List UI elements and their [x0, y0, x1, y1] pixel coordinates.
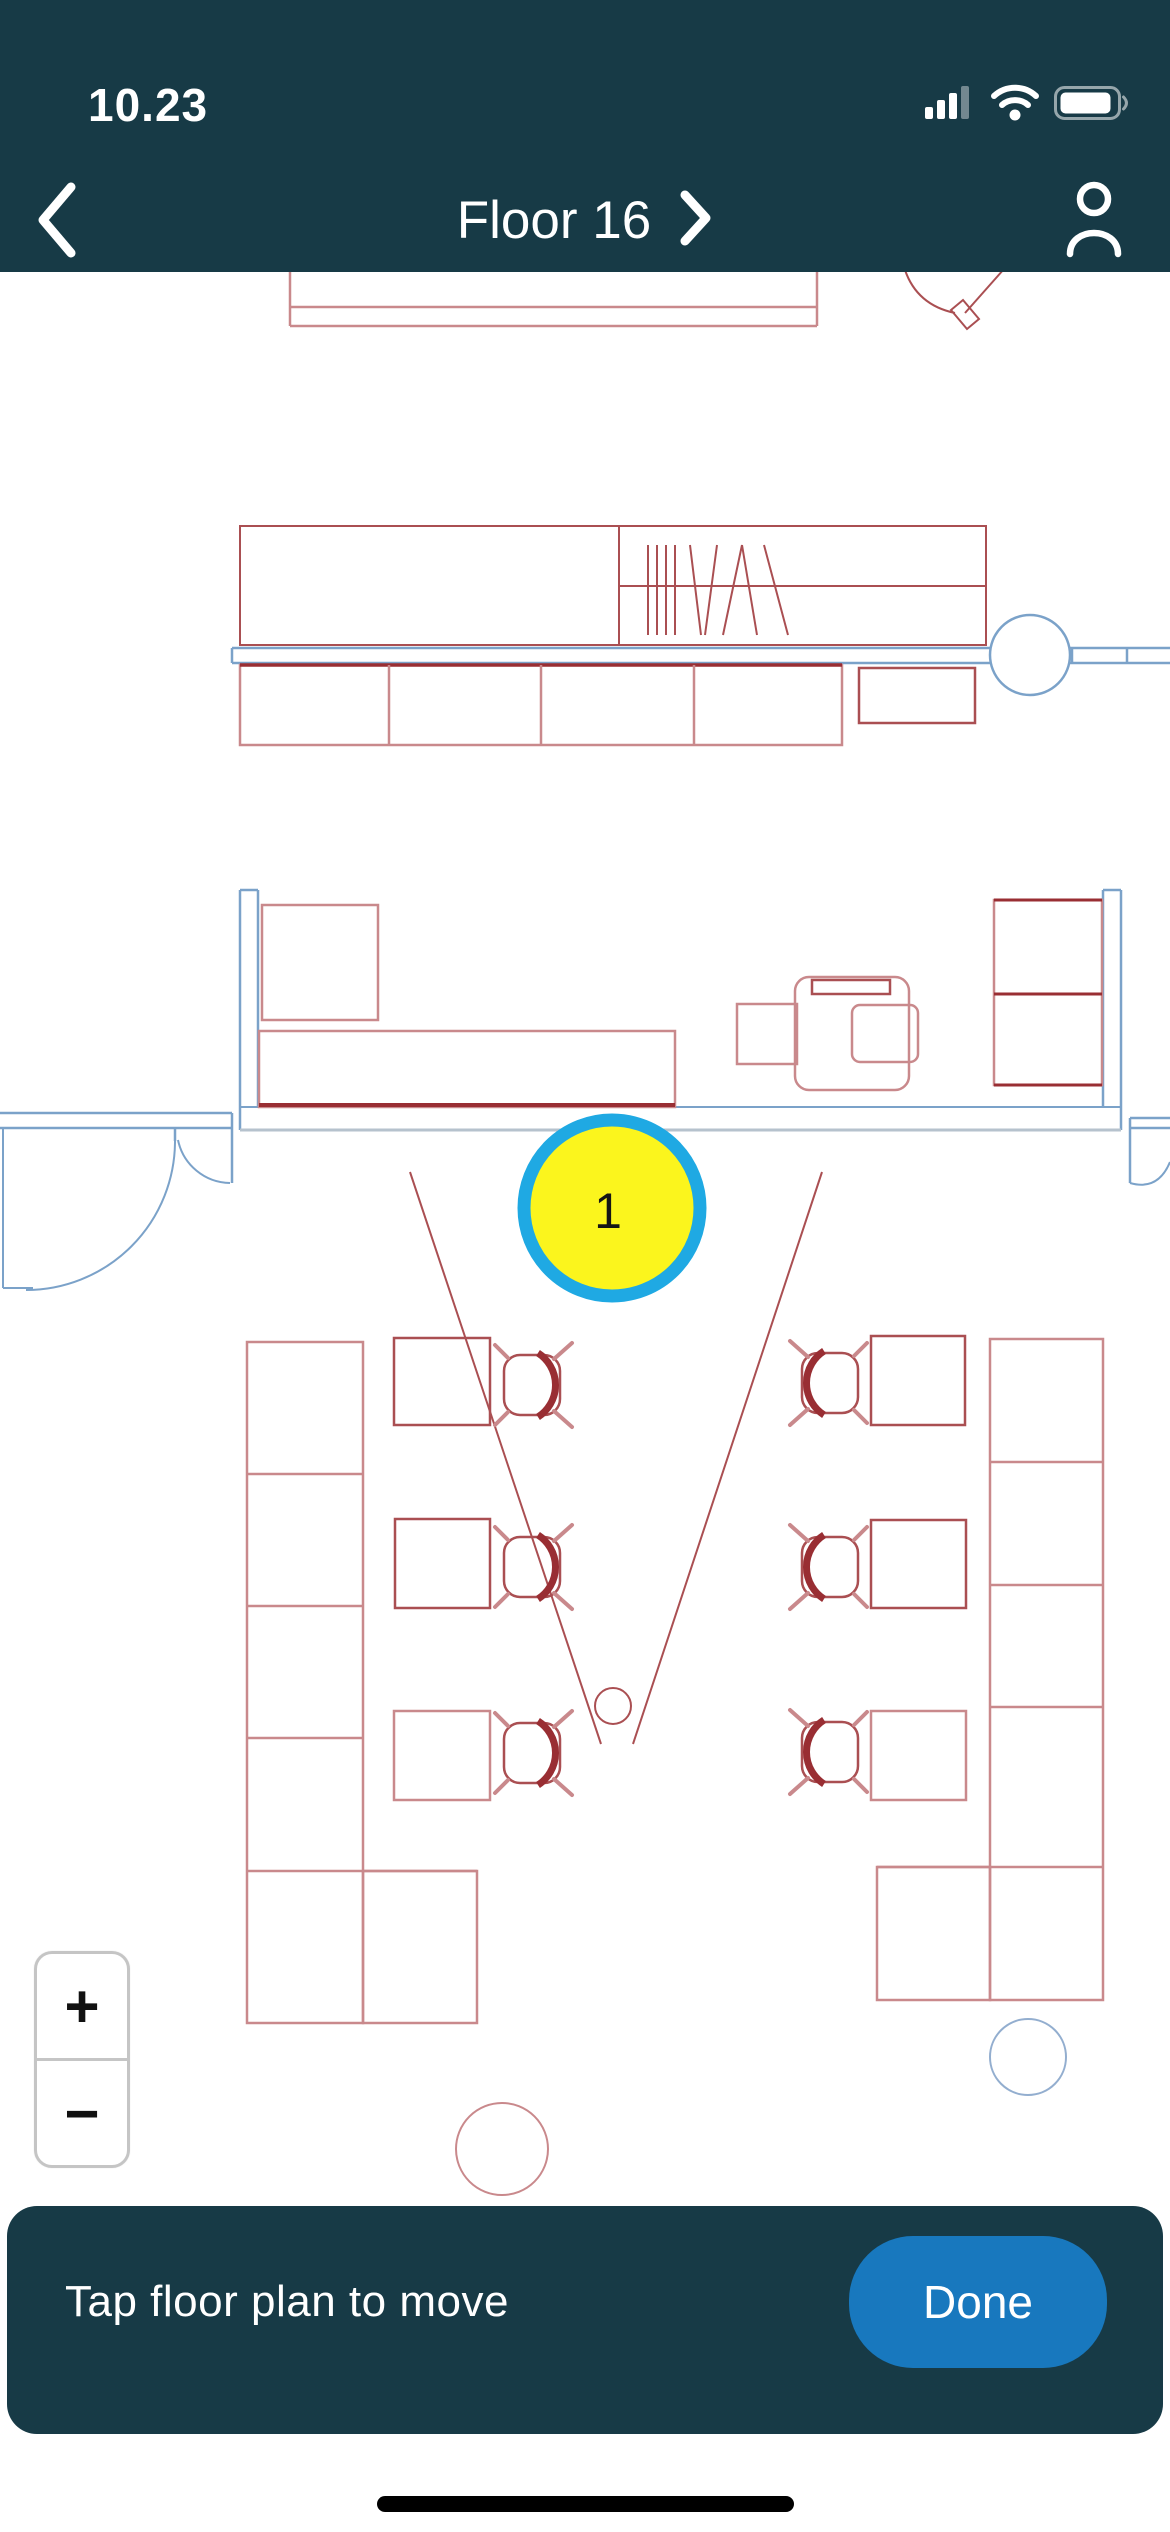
- chair-leg: [495, 1527, 508, 1540]
- chair-leg: [554, 1593, 572, 1609]
- chair-leg: [790, 1778, 808, 1794]
- entry-jamb-left: [3, 1128, 33, 1288]
- chair-back: [806, 1720, 824, 1784]
- chair-leg: [554, 1343, 572, 1359]
- room-cabinet: [262, 905, 378, 1020]
- status-icons: [924, 84, 1132, 127]
- chair-leg: [790, 1710, 808, 1726]
- room-wall-right: [1103, 890, 1121, 1130]
- home-indicator[interactable]: [377, 2496, 794, 2512]
- side-table: [859, 668, 975, 723]
- desk: [871, 1711, 966, 1800]
- desk: [395, 1519, 490, 1608]
- zoom-out-button[interactable]: −: [37, 2061, 127, 2165]
- chair-leg: [790, 1593, 808, 1609]
- chair: [495, 1711, 572, 1795]
- chair-back: [538, 1353, 556, 1417]
- cellular-signal-icon: [924, 85, 976, 126]
- chair: [790, 1710, 867, 1794]
- chair-leg: [790, 1525, 808, 1541]
- door-swing-right: [1130, 1162, 1170, 1185]
- floor-plan-svg[interactable]: 1: [0, 0, 1170, 2532]
- wifi-icon: [990, 84, 1040, 127]
- zoom-in-button[interactable]: +: [37, 1954, 127, 2061]
- chair-leg: [854, 1779, 867, 1792]
- chair-leg: [554, 1711, 572, 1727]
- floor-plan-canvas[interactable]: 1: [0, 0, 1170, 2532]
- room-credenza: [259, 1031, 675, 1107]
- door-arc-top: [905, 270, 955, 313]
- status-time: 10.23: [88, 78, 208, 132]
- chair-leg: [495, 1345, 508, 1358]
- bottom-action-bar: Tap floor plan to move Done: [7, 2206, 1163, 2434]
- room-wall-left: [240, 890, 258, 1130]
- counter-dividers: [389, 665, 694, 745]
- chair-leg: [854, 1594, 867, 1607]
- chair-leg: [790, 1409, 808, 1425]
- done-button[interactable]: Done: [849, 2236, 1107, 2368]
- battery-icon: [1054, 84, 1132, 127]
- seat-marker[interactable]: 1: [524, 1120, 700, 1296]
- desk: [871, 1520, 966, 1608]
- chair-back: [806, 1351, 824, 1415]
- profile-button[interactable]: [1054, 176, 1134, 268]
- seat-marker-label: 1: [594, 1183, 622, 1239]
- chair-leg: [554, 1411, 572, 1427]
- printer-tray: [812, 980, 890, 994]
- hint-text: Tap floor plan to move: [65, 2277, 509, 2327]
- chevron-right-icon: [679, 188, 713, 253]
- floor-socket: [595, 1688, 631, 1724]
- chair: [790, 1341, 867, 1425]
- door-swing-left-small: [178, 1140, 230, 1183]
- door-line-top: [965, 269, 1004, 313]
- entry-wall-left: [0, 1113, 232, 1128]
- chair-leg: [854, 1527, 867, 1540]
- chair-leg: [854, 1343, 867, 1356]
- room-shelf-edges: [994, 900, 1102, 1085]
- desk-bank-left-end: [363, 1871, 477, 2023]
- person-icon: [1061, 180, 1127, 265]
- desk-bank-right-end: [877, 1867, 990, 2000]
- door-leaf-top: [951, 300, 979, 329]
- hatch-marks: [648, 545, 788, 635]
- app-screen: 1 10.23: [0, 0, 1170, 2532]
- plan-circle-red: [456, 2103, 548, 2195]
- chair-back: [806, 1535, 824, 1599]
- chair-back: [538, 1535, 556, 1599]
- desk: [871, 1336, 965, 1425]
- chair: [790, 1525, 867, 1609]
- status-bar: 10.23: [0, 78, 1170, 138]
- printer-side-table: [737, 1004, 797, 1064]
- chair-leg: [854, 1712, 867, 1725]
- chair-leg: [495, 1780, 508, 1793]
- chair-leg: [790, 1341, 808, 1357]
- desk-bank-right: [990, 1339, 1103, 2000]
- desk: [394, 1711, 490, 1800]
- chair-leg: [554, 1779, 572, 1795]
- floor-plan-chairs: [495, 1341, 867, 1795]
- nav-bar: Floor 16: [0, 168, 1170, 272]
- counter-top: [290, 270, 817, 326]
- door-swing-left: [26, 1141, 175, 1290]
- chair-leg: [495, 1713, 508, 1726]
- chair: [495, 1525, 572, 1609]
- chair-leg: [554, 1525, 572, 1541]
- desk-bank-left: [247, 1342, 363, 2023]
- floor-selector[interactable]: Floor 16: [0, 168, 1170, 272]
- header-bar: 10.23: [0, 0, 1170, 272]
- column-circle: [990, 615, 1070, 695]
- chair: [495, 1343, 572, 1427]
- desk: [394, 1338, 490, 1425]
- zoom-control: + −: [34, 1951, 130, 2168]
- chair-leg: [854, 1410, 867, 1423]
- plan-circle-blue: [990, 2019, 1066, 2095]
- chair-leg: [495, 1594, 508, 1607]
- chair-back: [538, 1721, 556, 1785]
- page-title: Floor 16: [457, 190, 651, 251]
- chair-leg: [495, 1412, 508, 1425]
